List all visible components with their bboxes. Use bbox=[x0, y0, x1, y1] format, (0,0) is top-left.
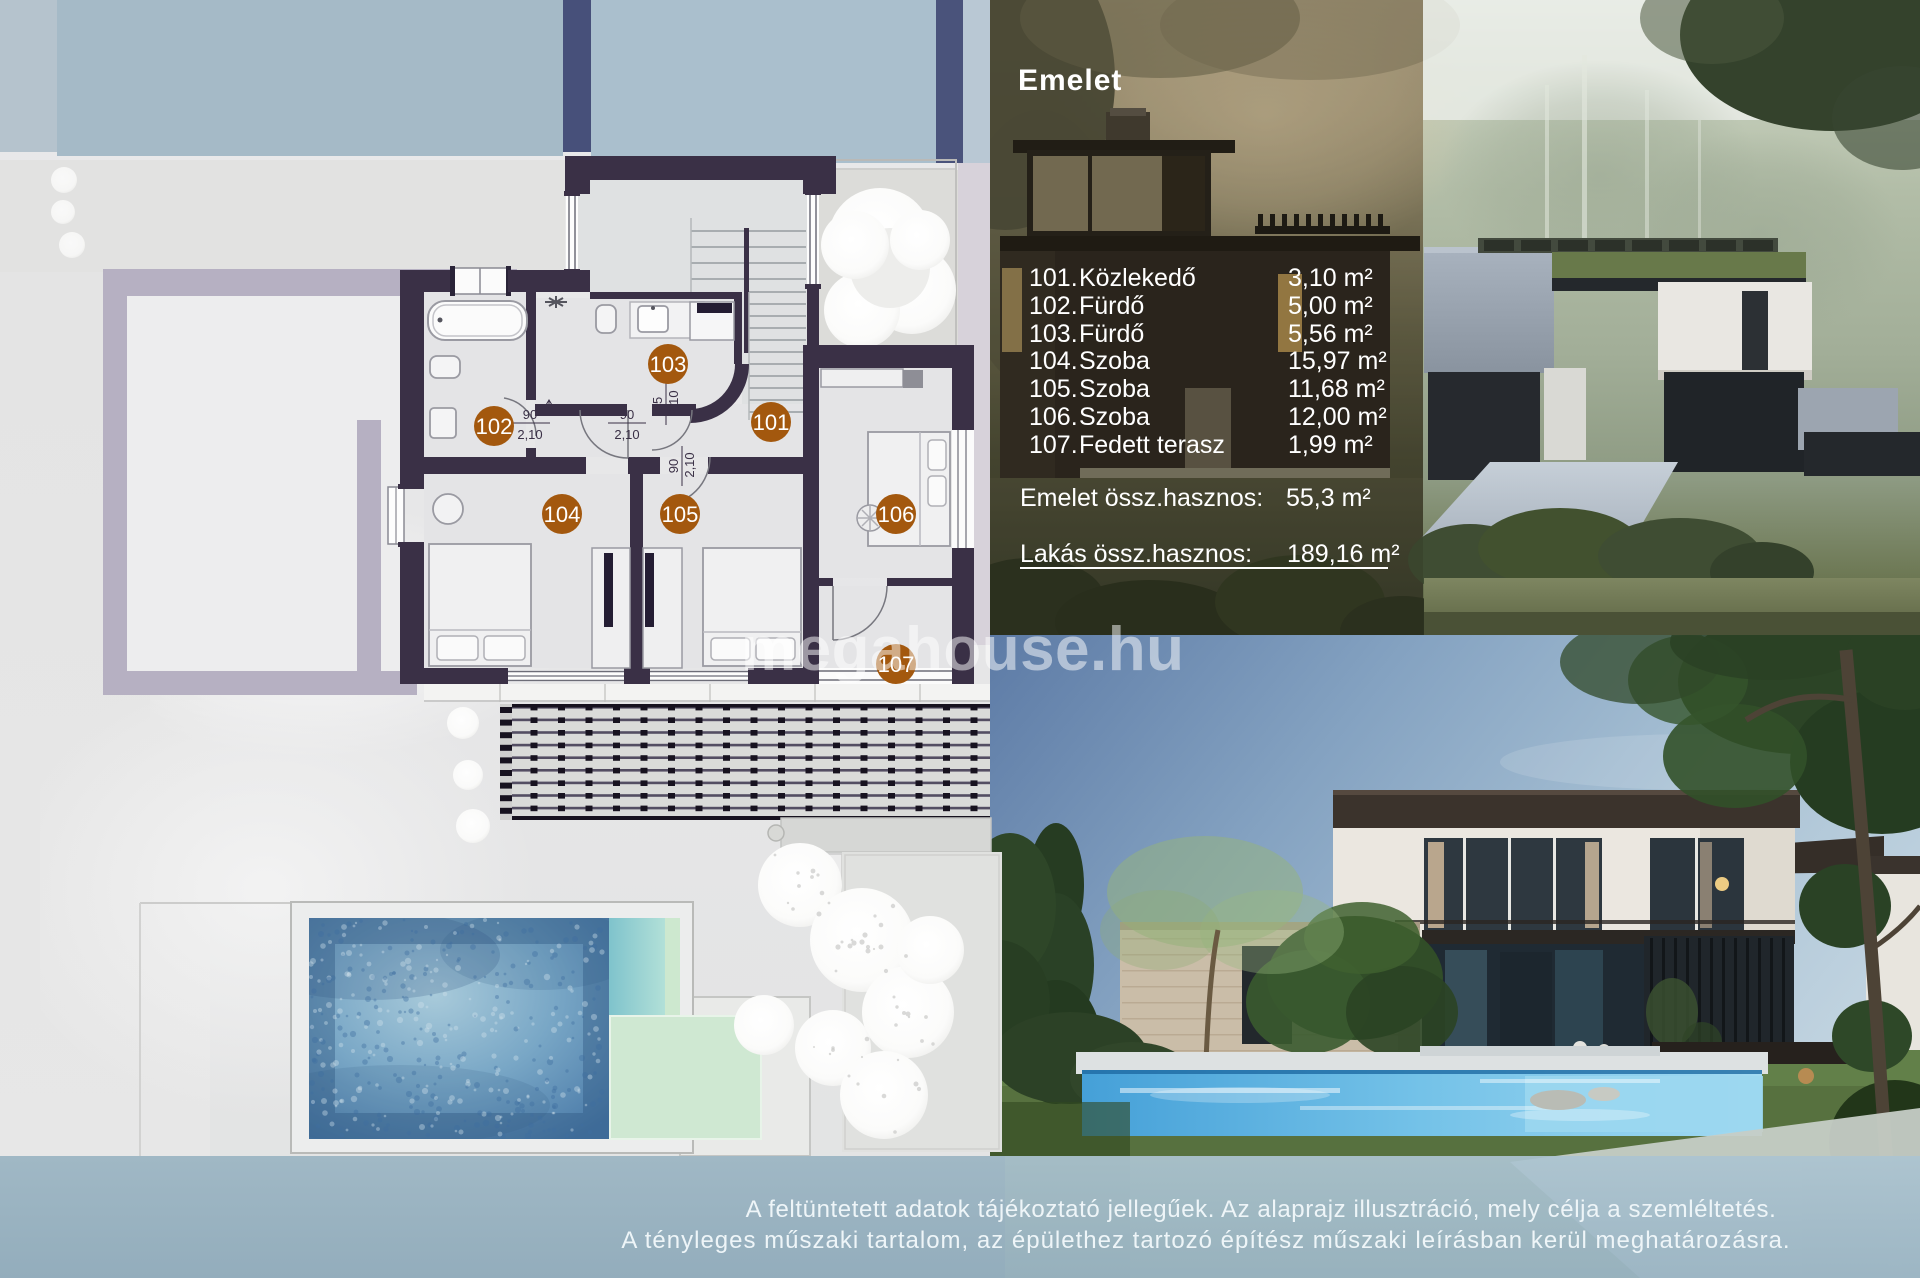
svg-text:90: 90 bbox=[620, 407, 634, 422]
svg-text:102: 102 bbox=[476, 414, 513, 439]
svg-text:90: 90 bbox=[666, 459, 681, 473]
svg-text:2,10: 2,10 bbox=[666, 390, 681, 415]
svg-text:2,10: 2,10 bbox=[614, 427, 639, 442]
svg-text:90: 90 bbox=[523, 407, 537, 422]
svg-text:105: 105 bbox=[662, 502, 699, 527]
svg-text:101: 101 bbox=[753, 410, 790, 435]
svg-text:2,10: 2,10 bbox=[682, 452, 697, 477]
svg-text:106: 106 bbox=[878, 502, 915, 527]
svg-text:104: 104 bbox=[544, 502, 581, 527]
svg-text:2,10: 2,10 bbox=[517, 427, 542, 442]
svg-text:103: 103 bbox=[650, 352, 687, 377]
svg-text:75: 75 bbox=[650, 397, 665, 411]
